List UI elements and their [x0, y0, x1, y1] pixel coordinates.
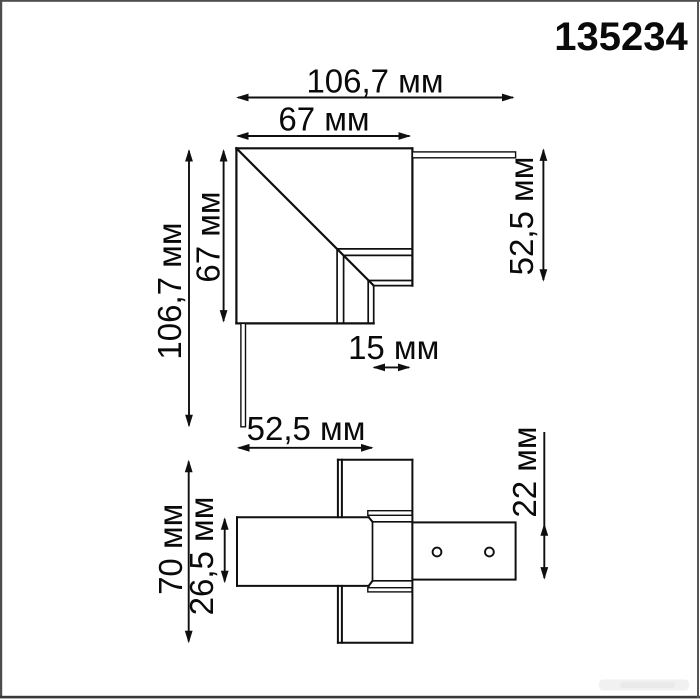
svg-text:67 мм: 67 мм — [190, 191, 227, 282]
svg-text:135234: 135234 — [554, 15, 688, 59]
svg-text:52,5 мм: 52,5 мм — [503, 157, 540, 276]
svg-text:106,7 мм: 106,7 мм — [151, 222, 188, 359]
svg-text:52,5 мм: 52,5 мм — [247, 410, 366, 447]
svg-text:106,7 мм: 106,7 мм — [306, 63, 443, 100]
svg-text:26,5 мм: 26,5 мм — [183, 497, 220, 616]
svg-text:15 мм: 15 мм — [348, 329, 439, 366]
svg-text:22 мм: 22 мм — [506, 426, 543, 517]
svg-text:67 мм: 67 мм — [278, 100, 369, 137]
